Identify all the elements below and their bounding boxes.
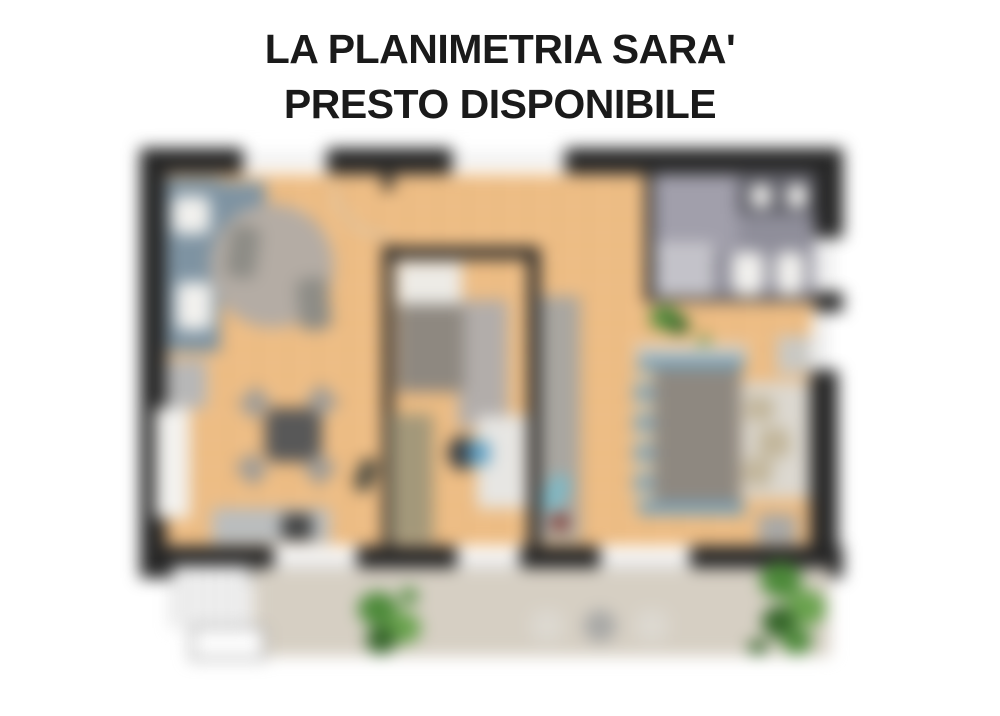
terrace-plant (400, 588, 418, 604)
dining-table (265, 408, 322, 462)
placeholder-image: LA PLANIMETRIA SARA' PRESTO DISPONIBILE (0, 0, 1000, 716)
wall-right-segment (810, 370, 838, 578)
lounge-chair (295, 276, 332, 331)
wall-right-segment (815, 148, 843, 238)
single-bed-pillow (397, 262, 462, 308)
window-top-center (452, 150, 565, 170)
kitchen-cabinet (166, 360, 207, 408)
sideboard (212, 508, 330, 544)
floor-plan (0, 0, 1000, 716)
stairs (172, 566, 250, 628)
bedroom-plant (668, 316, 690, 334)
window-right-bedroom (812, 312, 834, 370)
bedroom-rug (458, 300, 508, 428)
kitchen-sink (172, 196, 210, 234)
bathroom-tile (653, 174, 738, 252)
window-top-left (243, 150, 327, 170)
terrace-plant (366, 626, 396, 654)
sideboard-stove (282, 514, 312, 540)
stool (552, 514, 568, 530)
wardrobe (390, 414, 433, 543)
stair-landing (190, 626, 266, 660)
terrace-plant (782, 628, 812, 654)
toilet (732, 252, 764, 296)
window-right-bathroom (818, 238, 840, 292)
interior-wall (383, 247, 540, 259)
single-bed (397, 304, 464, 392)
sink (786, 184, 808, 208)
wall-top-segment (565, 148, 843, 174)
master-bed-foot-band (638, 502, 745, 515)
bidet (776, 252, 804, 296)
terrace-table (584, 610, 616, 642)
shower (658, 244, 712, 294)
sink (750, 184, 772, 208)
wall-niche (155, 408, 190, 518)
cushion (756, 426, 792, 460)
dresser (777, 336, 812, 374)
wall-right-segment (815, 292, 843, 312)
wall-top-segment (327, 148, 452, 174)
master-bed-blue-band (638, 356, 745, 369)
tv-unit (758, 514, 796, 544)
terrace-plant (748, 640, 768, 654)
bed-side-shelf (633, 369, 654, 503)
desk-chair-cushion (468, 440, 490, 466)
terrace-chair (531, 610, 563, 642)
interior-wall (528, 247, 540, 546)
terrace-chair (636, 610, 668, 642)
master-bed (654, 369, 741, 503)
kitchen-appliance (176, 282, 212, 330)
